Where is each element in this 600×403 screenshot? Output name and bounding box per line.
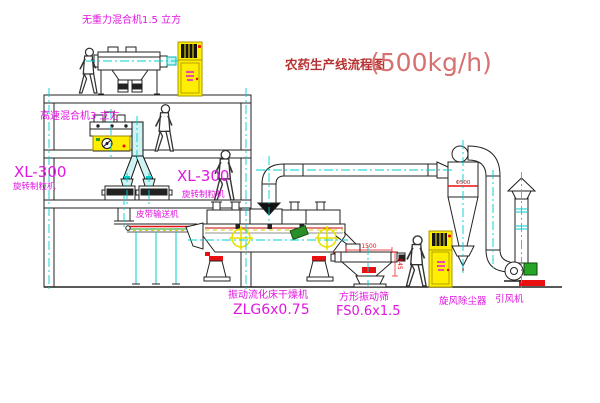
outlet-pipe xyxy=(486,176,510,272)
dryer-stand-right xyxy=(307,256,333,281)
label-belt-conveyor: 皮带输送机 xyxy=(136,209,179,220)
person-floor-2 xyxy=(155,105,173,151)
gravity-free-mixer xyxy=(94,47,176,94)
dim-sieve-length: 1500 xyxy=(361,243,376,250)
cad-drawing-canvas: 农药生产线流程图 (500kg/h) 无重力混合机1.5 立方 高速混合机3 立… xyxy=(0,0,600,403)
belt-conveyor xyxy=(126,224,198,284)
floor-top xyxy=(44,95,251,103)
fan-motor xyxy=(524,263,537,275)
conveyor-legs xyxy=(136,232,176,284)
label-sieve-name: 方形振动筛 xyxy=(339,290,389,303)
dryer-stand-left xyxy=(204,256,230,281)
sieve-deck xyxy=(335,252,397,262)
label-gravity-free-mixer: 无重力混合机1.5 立方 xyxy=(82,13,181,26)
label-high-speed-mixer: 高速混合机3 立方 xyxy=(40,109,120,122)
label-cyclone: 旋风除尘器 xyxy=(439,295,487,307)
label-granulator-right-name: 旋转制粒机 xyxy=(182,189,225,200)
label-dryer-model: ZLG6x0.75 xyxy=(233,302,310,318)
label-dryer-name: 振动流化床干燥机 xyxy=(228,288,308,301)
label-granulator-left-name: 旋转制粒机 xyxy=(13,181,56,192)
dim-sieve-height: 545 xyxy=(396,258,403,270)
dim-cyclone-dia: Φ500 xyxy=(456,180,471,186)
exhaust-duct xyxy=(250,162,448,224)
label-granulator-left-model: XL-300 xyxy=(14,163,66,181)
control-cabinet-1 xyxy=(178,42,202,96)
induced-draft-fan xyxy=(504,262,545,286)
indicator-light xyxy=(448,235,451,238)
granulator-right xyxy=(136,176,172,200)
cyclone-vortex-finder xyxy=(452,146,468,162)
person-ground xyxy=(406,236,426,286)
process-flow-diagram: 农药生产线流程图 (500kg/h) 无重力混合机1.5 立方 高速混合机3 立… xyxy=(0,0,600,403)
indicator-light xyxy=(198,45,201,48)
label-fan: 引风机 xyxy=(495,293,524,305)
diagram-capacity: (500kg/h) xyxy=(370,48,492,77)
floor-middle xyxy=(44,150,251,158)
label-sieve-model: FS0.6x1.5 xyxy=(336,304,401,319)
duct-elbow xyxy=(262,164,284,184)
dryer-feed-hopper xyxy=(186,223,203,249)
granulator-left xyxy=(102,176,138,200)
fan-base xyxy=(519,280,545,286)
control-cabinet-2 xyxy=(429,231,452,287)
label-granulator-right-model: XL-300 xyxy=(177,167,229,185)
